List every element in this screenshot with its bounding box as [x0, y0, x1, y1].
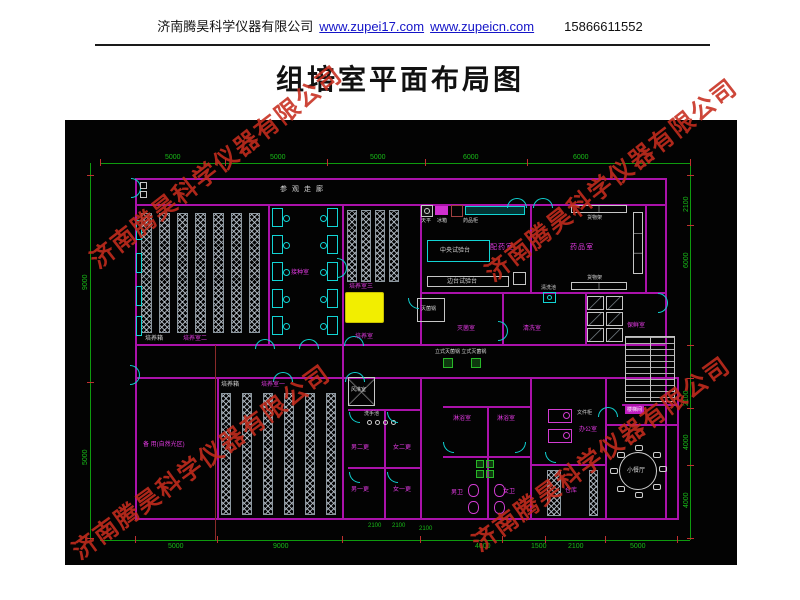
toilet-stall-icon [486, 470, 494, 478]
dim-tick [687, 225, 694, 226]
door-icon [598, 407, 618, 417]
extension-line [215, 345, 216, 540]
laminar-hood-icon [327, 316, 338, 335]
dim-bottom-3: 1500 [531, 543, 547, 550]
fridge-icon [587, 312, 604, 326]
room-label-culture-3: 培养室三 [349, 284, 373, 290]
incubator-icon [136, 253, 142, 273]
door-icon [533, 198, 553, 208]
room-label-culture: 培养室 [355, 334, 373, 340]
room-label-office: 办公室 [579, 427, 597, 433]
room-label-dining: 小餐厅 [627, 468, 645, 474]
room-label-women-change-1: 女一更 [393, 487, 411, 493]
equip-label-goods-shelf: 货物架 [587, 276, 602, 281]
office-chair-icon [563, 432, 570, 439]
vertical-autoclave-icon [471, 358, 481, 368]
dining-chair-icon [653, 484, 661, 490]
toilet-stall-icon [476, 460, 484, 468]
floorplan-canvas: 5000 5000 5000 6000 6000 9000 5000 2100 … [65, 120, 737, 565]
dim-tick [225, 159, 226, 166]
dining-chair-icon [653, 452, 661, 458]
dining-chair-icon [635, 445, 643, 451]
wash-sink-drain-icon [547, 295, 552, 300]
fridge-icon [606, 296, 623, 310]
equip-label-file-cabinet: 文件柜 [577, 411, 592, 416]
equip-label-side-bench: 边台试验台 [447, 279, 477, 285]
culture-rack [305, 393, 315, 515]
incubator-icon [136, 220, 142, 240]
dim-tick [135, 536, 136, 543]
dim-tick [687, 408, 694, 409]
culture-rack [231, 213, 242, 333]
room-label-womens-wc: 女卫 [503, 489, 515, 495]
incubator-icon [136, 316, 142, 336]
culture-rack [389, 210, 399, 282]
dim-right-4: 4000 [683, 492, 690, 508]
room-label-shower: 淋浴室 [497, 416, 515, 422]
equip-label-hand-sink: 洗手池 [364, 412, 379, 417]
goods-shelf [633, 212, 643, 274]
toilet-icon [494, 501, 505, 514]
culture-rack [221, 393, 231, 515]
dim-tick [87, 175, 94, 176]
door-icon [273, 372, 293, 382]
laminar-hood-icon [272, 262, 283, 281]
dim-left-1: 5000 [82, 449, 89, 465]
highlight-box [345, 292, 384, 323]
equip-label-air-shower: 风淋室 [351, 388, 366, 393]
dim-line-right [690, 163, 691, 540]
culture-rack [284, 393, 294, 515]
room-label-men-change-1: 男一更 [351, 487, 369, 493]
storage-rack [589, 470, 598, 516]
sink-box-icon [513, 272, 526, 285]
door-icon [337, 258, 347, 278]
culture-rack [177, 213, 188, 333]
culture-rack [159, 213, 170, 333]
link-zupei17[interactable]: www.zupei17.com [319, 19, 424, 34]
legend-box [140, 182, 147, 189]
equip-label-medicine-cabinet: 药品柜 [463, 219, 478, 224]
dim-tick [687, 175, 694, 176]
dim-tick [502, 536, 503, 543]
dim-tick [420, 536, 421, 543]
goods-shelf [571, 205, 627, 213]
wall [605, 377, 607, 520]
dim-line-left [90, 163, 91, 540]
equip-label-vert-autoclaves: 立式灭菌锅 立式灭菌锅 [435, 350, 486, 355]
dim-right-2: 2100 [683, 390, 690, 406]
hand-sink-icon [367, 420, 372, 425]
room-label-spare: 备 用(自然光区) [143, 442, 185, 448]
equip-label-balance: 天平 [421, 219, 431, 224]
room-label-sterilization: 灭菌室 [457, 326, 475, 332]
room-label-mens-wc: 男卫 [451, 490, 463, 496]
dim-bottom-4: 2100 [568, 543, 584, 550]
hand-sink-icon [375, 420, 380, 425]
wall [605, 424, 679, 426]
dim-tick [677, 536, 678, 543]
wall [420, 204, 422, 345]
header-divider [95, 44, 710, 46]
dim-tick [687, 378, 694, 379]
culture-rack [326, 393, 336, 515]
toilet-stall-icon [476, 470, 484, 478]
cabinet-icon [451, 205, 463, 217]
culture-rack [213, 213, 224, 333]
dim-bottom-0: 5000 [168, 543, 184, 550]
dim-tick [690, 159, 691, 166]
wall [342, 204, 344, 378]
culture-rack [242, 393, 252, 515]
equip-label-incubator: 培养箱 [221, 382, 239, 388]
dim-tick [527, 159, 528, 166]
culture-rack [347, 210, 357, 282]
room-label-women-change-2: 女二更 [393, 445, 411, 451]
culture-rack [195, 213, 206, 333]
door-icon [498, 321, 508, 341]
office-chair-icon [563, 412, 570, 419]
room-label-shower: 淋浴室 [453, 416, 471, 422]
dining-chair-icon [617, 486, 625, 492]
dim-left-0: 9000 [82, 274, 89, 290]
room-label-men-change-2: 男二更 [351, 445, 369, 451]
fridge-icon [587, 296, 604, 310]
fridge-tag-icon [435, 206, 448, 215]
laminar-hood-icon [327, 235, 338, 254]
equip-label-autoclave: 灭菌锅 [421, 307, 436, 312]
toilet-icon [468, 501, 479, 514]
laminar-hood-icon [272, 289, 283, 308]
dim-tick [217, 536, 218, 543]
culture-rack [375, 210, 385, 282]
hand-sink-icon [383, 420, 388, 425]
fridge-icon [606, 312, 623, 326]
fridge-icon [606, 328, 623, 342]
room-label-culture-2: 培养室二 [183, 336, 207, 342]
wall [530, 464, 605, 466]
dim-right-0: 2100 [683, 196, 690, 212]
dining-chair-icon [635, 492, 643, 498]
room-label-dispensing: 配药室 [490, 244, 514, 251]
dining-chair-icon [617, 452, 625, 458]
phone-number: 15866611552 [564, 19, 643, 34]
wall [530, 204, 532, 293]
laminar-hood-icon [272, 316, 283, 335]
wall [677, 377, 679, 520]
page-header: 济南腾昊科学仪器有限公司www.zupei17.comwww.zupeicn.c… [0, 16, 800, 35]
equip-label-wash-sink: 清洗池 [541, 286, 556, 291]
link-zupeicn[interactable]: www.zupeicn.com [430, 19, 534, 34]
laminar-hood-icon [327, 289, 338, 308]
dining-chair-icon [610, 468, 618, 474]
dim-tick [87, 538, 94, 539]
corridor-label: 参观走廊 [280, 186, 328, 193]
wall [384, 409, 386, 520]
dining-chair-icon [659, 466, 667, 472]
door-icon [255, 339, 275, 349]
dim-inner-2: 2100 [419, 526, 432, 532]
dim-inner-0: 2100 [368, 523, 381, 529]
dim-tick [687, 538, 694, 539]
room-label-inoculation: 接种室 [291, 270, 309, 276]
dim-bottom-1: 9000 [273, 543, 289, 550]
dim-bottom-5: 5000 [630, 543, 646, 550]
vertical-autoclave-icon [443, 358, 453, 368]
dim-tick [605, 536, 606, 543]
dim-top-2: 5000 [370, 154, 386, 161]
wall [268, 204, 270, 345]
storage-rack [547, 470, 561, 516]
dim-top-3: 6000 [463, 154, 479, 161]
door-icon [130, 365, 140, 385]
dim-tick [100, 159, 101, 166]
toilet-stall-icon [486, 460, 494, 468]
room-label-culture-1: 培养室一 [261, 382, 285, 388]
wall [645, 204, 647, 293]
culture-rack [361, 210, 371, 282]
room-label-freshkeeping: 保鲜室 [627, 323, 645, 329]
dim-line-bottom [100, 540, 690, 541]
equip-label-central-bench: 中央试验台 [440, 248, 470, 254]
stairs-note: 楼梯间 [625, 406, 644, 414]
dim-right-3: 4000 [683, 434, 690, 450]
room-label-medicine: 药品室 [570, 244, 594, 251]
company-name: 济南腾昊科学仪器有限公司 [157, 19, 313, 34]
dim-tick [87, 382, 94, 383]
dim-bottom-2: 4000 [475, 543, 491, 550]
equip-label-incubator: 培养箱 [145, 336, 163, 342]
room-label-storage: 仓库 [565, 488, 577, 494]
legend-box [140, 191, 147, 198]
wall [342, 377, 344, 520]
goods-shelf [571, 282, 627, 290]
incubator-icon [136, 286, 142, 306]
fridge-icon [587, 328, 604, 342]
culture-rack [249, 213, 260, 333]
culture-rack [263, 393, 273, 515]
dim-line-top [100, 163, 690, 164]
room-label-washing: 清洗室 [523, 326, 541, 332]
dim-top-0: 5000 [165, 154, 181, 161]
equip-label-goods-shelf: 货物架 [587, 216, 602, 221]
wall [530, 377, 532, 520]
dim-tick [342, 536, 343, 543]
laminar-hood-icon [327, 208, 338, 227]
dim-tick [687, 345, 694, 346]
laminar-hood-icon [272, 235, 283, 254]
stairs [625, 336, 675, 402]
door-icon [299, 339, 319, 349]
toilet-icon [468, 484, 479, 497]
door-icon [345, 372, 365, 382]
dim-tick [687, 465, 694, 466]
page-title: 组培室平面布局图 [0, 58, 800, 98]
culture-rack [141, 213, 152, 333]
dim-tick [545, 536, 546, 543]
dim-right-1: 6000 [683, 252, 690, 268]
door-icon [507, 198, 527, 208]
dim-top-1: 5000 [270, 154, 286, 161]
balance-dial-icon [424, 208, 430, 214]
equip-label-fridge: 冰箱 [437, 219, 447, 224]
dim-tick [425, 159, 426, 166]
dim-top-4: 6000 [573, 154, 589, 161]
wall [420, 377, 422, 520]
dim-inner-1: 2100 [392, 523, 405, 529]
wall [217, 377, 219, 520]
door-icon [658, 293, 668, 313]
dim-tick [327, 159, 328, 166]
laminar-hood-icon [272, 208, 283, 227]
